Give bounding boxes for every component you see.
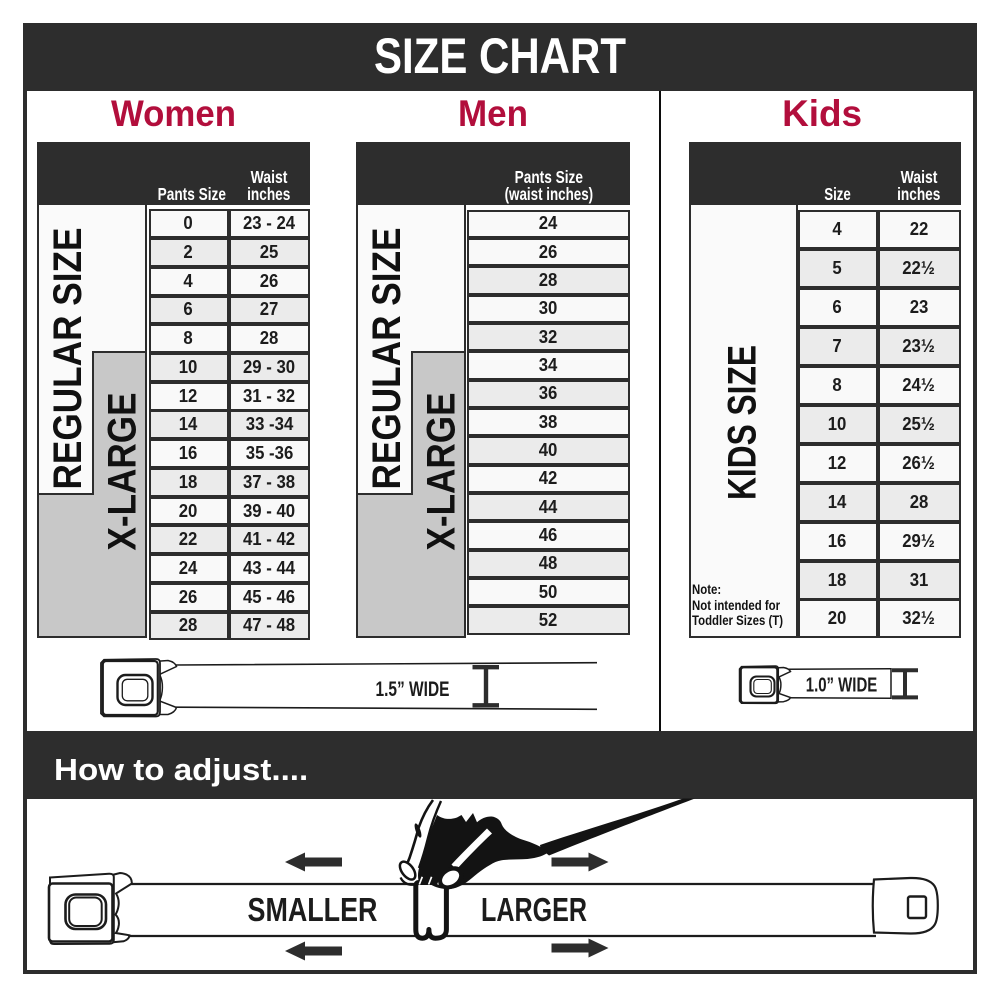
svg-text:1.5” WIDE: 1.5” WIDE bbox=[376, 676, 450, 700]
svg-text:How to adjust....: How to adjust.... bbox=[54, 752, 308, 787]
svg-text:LARGER: LARGER bbox=[481, 892, 587, 929]
svg-text:SMALLER: SMALLER bbox=[248, 892, 378, 928]
svg-text:1.0” WIDE: 1.0” WIDE bbox=[806, 673, 878, 696]
